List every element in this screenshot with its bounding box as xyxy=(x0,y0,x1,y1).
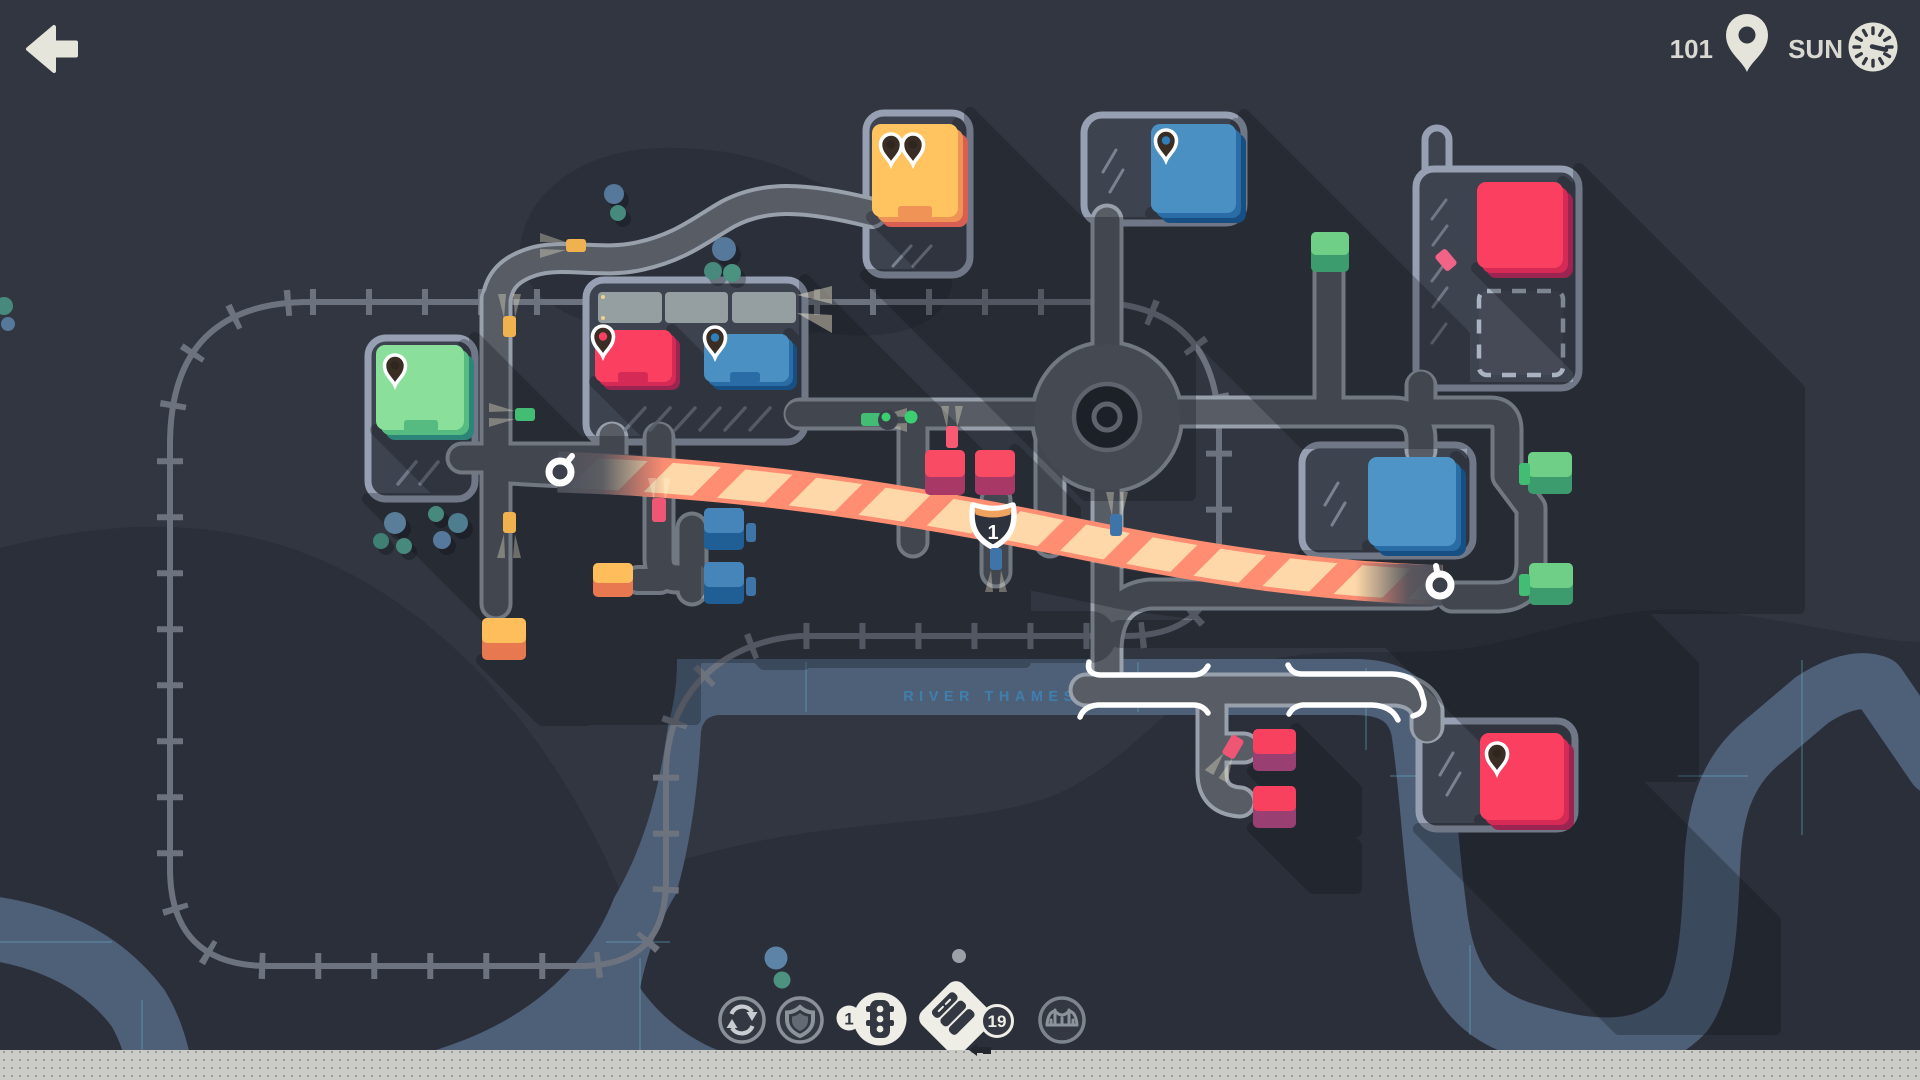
svg-text:101: 101 xyxy=(1670,34,1713,64)
svg-text:1: 1 xyxy=(844,1010,853,1029)
svg-text:SUN: SUN xyxy=(1788,34,1843,64)
svg-text:19: 19 xyxy=(988,1012,1007,1031)
svg-text:1: 1 xyxy=(987,522,998,544)
svg-text:RIVER THAMES: RIVER THAMES xyxy=(903,689,1079,705)
